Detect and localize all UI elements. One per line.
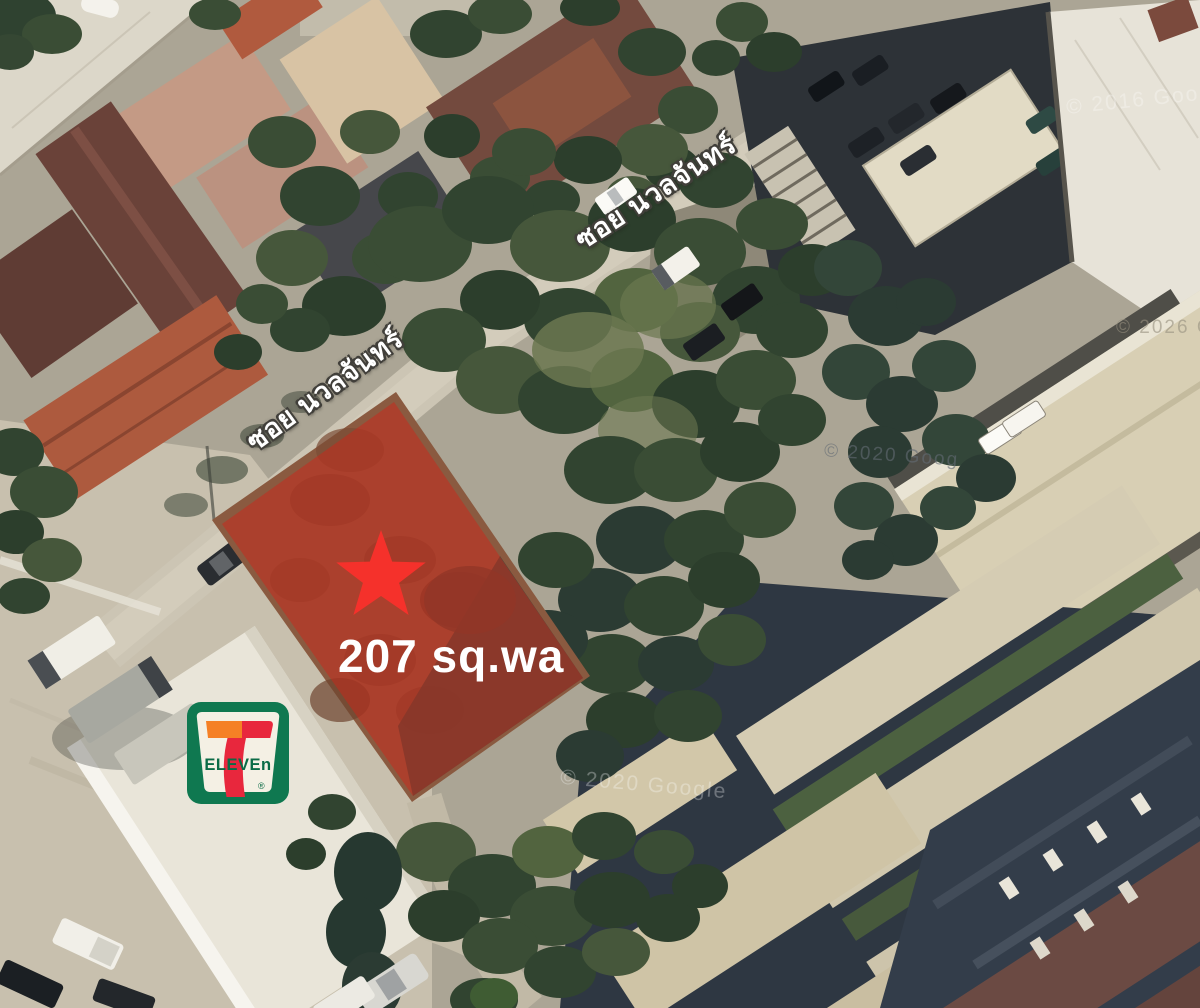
satellite-map[interactable]: ซอย นวลจันทร์ ซอย นวลจันทร์ 207 sq.wa © …	[0, 0, 1200, 1008]
seven-eleven-logo: ELEVEn ®	[186, 701, 290, 805]
plot-area-label: 207 sq.wa	[338, 633, 564, 679]
google-watermark: © 2026 G	[1116, 318, 1200, 337]
satellite-imagery	[0, 0, 1200, 1008]
seven-eleven-wordmark: ELEVEn	[204, 756, 271, 774]
seven-eleven-registered-mark: ®	[258, 781, 265, 791]
seven-eleven-logo-orange-bar	[206, 721, 242, 738]
